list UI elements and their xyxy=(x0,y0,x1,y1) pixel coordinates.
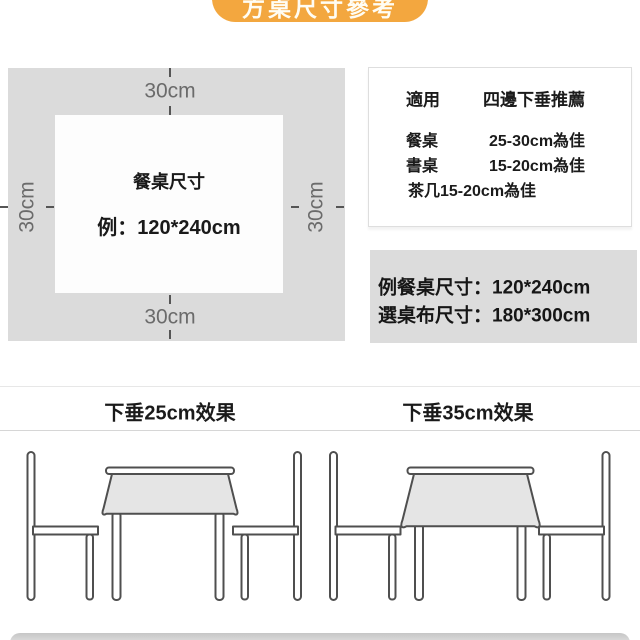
row-desk-label: 書桌 xyxy=(406,152,438,176)
tick-bottom-lower xyxy=(169,330,171,339)
drop-25-illustration xyxy=(0,440,320,615)
tablecloth-diagram: 餐桌尺寸 例：120*240cm xyxy=(8,68,345,341)
chair-right-icon xyxy=(233,452,301,600)
infographic-page: 方桌尺寸參考 餐桌尺寸 例：120*240cm 30cm 30cm 30cm 3… xyxy=(0,0,640,640)
row-desk-value: 15-20cm為佳 xyxy=(489,152,585,176)
table-top-area: 餐桌尺寸 例：120*240cm xyxy=(55,115,283,293)
table-size-example: 例：120*240cm xyxy=(97,211,240,240)
chair-right-icon xyxy=(539,452,610,600)
row-dining-table-label: 餐桌 xyxy=(406,127,438,151)
title-badge: 方桌尺寸參考 xyxy=(212,0,428,22)
dimension-top: 30cm xyxy=(144,81,195,102)
table-cloth-25-icon xyxy=(103,468,238,601)
tick-left-inner xyxy=(46,206,54,208)
tick-right-outer xyxy=(336,206,344,208)
divider-lower xyxy=(0,430,640,431)
tick-top-upper xyxy=(169,68,171,77)
tick-left-outer xyxy=(0,206,8,208)
example-table-size: 例餐桌尺寸：120*240cm xyxy=(378,273,590,300)
drop-recommendation-panel: 適用 四邊下垂推薦 餐桌 25-30cm為佳 書桌 15-20cm為佳 茶几15… xyxy=(368,67,632,227)
example-cloth-size: 選桌布尺寸：180*300cm xyxy=(378,301,590,328)
page-title: 方桌尺寸參考 xyxy=(242,0,398,20)
chair-left-icon xyxy=(330,452,401,600)
example-size-box: 例餐桌尺寸：120*240cm 選桌布尺寸：180*300cm xyxy=(370,250,637,343)
tick-bottom-upper xyxy=(169,295,171,304)
dimension-right: 30cm xyxy=(306,181,327,232)
panel-header-usage: 適用 xyxy=(406,86,440,111)
table-cloth-35-icon xyxy=(401,468,539,601)
drop-35-label: 下垂35cm效果 xyxy=(402,397,533,426)
divider-upper xyxy=(0,386,640,387)
row-dining-table-value: 25-30cm為佳 xyxy=(489,127,585,151)
dimension-bottom: 30cm xyxy=(144,307,195,328)
tick-right-inner xyxy=(291,206,299,208)
tick-top-lower xyxy=(169,106,171,115)
chair-left-icon xyxy=(28,452,99,600)
drop-25-label: 下垂25cm效果 xyxy=(104,397,235,426)
drop-35-illustration xyxy=(320,440,640,615)
next-section-edge xyxy=(10,633,630,640)
panel-header-recommendation: 四邊下垂推薦 xyxy=(483,86,585,111)
row-tea-table-label: 茶几15-20cm為佳 xyxy=(408,177,536,201)
dimension-left: 30cm xyxy=(17,181,38,232)
table-size-title: 餐桌尺寸 xyxy=(133,168,205,194)
